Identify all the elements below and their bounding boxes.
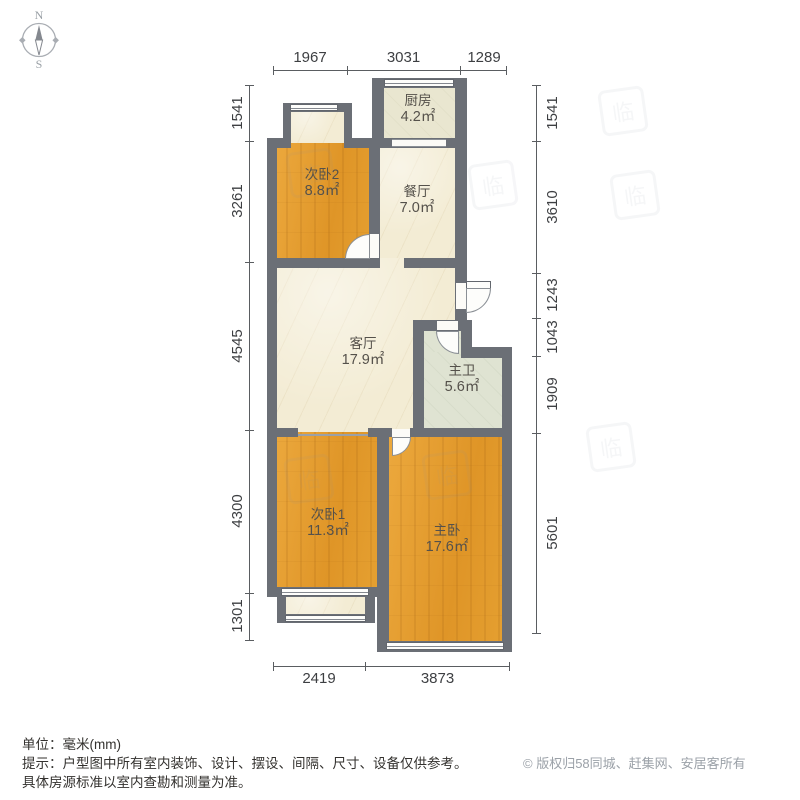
compass-north-label: N <box>35 8 44 22</box>
room-area: 17.6㎡ <box>415 539 479 555</box>
room-area: 7.0㎡ <box>387 200 447 216</box>
room-label-master-bath: 主卫 5.6㎡ <box>432 363 492 395</box>
wall <box>410 428 512 437</box>
dim-label: 5601 <box>545 498 561 568</box>
dim-line-left <box>249 85 250 640</box>
room-label-bedroom1: 次卧1 11.3㎡ <box>296 507 360 539</box>
dim-tick <box>245 262 254 263</box>
compass-needle-north <box>35 25 42 40</box>
dim-tick <box>460 66 461 75</box>
dim-label: 1967 <box>273 50 347 66</box>
dim-label: 1541 <box>230 78 246 148</box>
wall <box>267 258 380 268</box>
room-area: 11.3㎡ <box>296 523 360 539</box>
compass-needle-south <box>35 40 42 55</box>
dim-tick <box>532 85 541 86</box>
room-name: 餐厅 <box>387 184 447 200</box>
entry-door-opening <box>456 283 466 309</box>
entry-door-arc <box>466 288 491 313</box>
room-area: 8.8㎡ <box>292 183 352 199</box>
room-name: 主卧 <box>415 523 479 539</box>
wall <box>372 78 384 147</box>
wall <box>404 258 455 268</box>
dim-label: 3261 <box>230 166 246 236</box>
floorplan-canvas: N S 厨房 <box>0 0 800 800</box>
room-name: 次卧2 <box>292 167 352 183</box>
dim-label: 1289 <box>458 50 510 66</box>
hint-note-line1: 提示：户型图中所有室内装饰、设计、摆设、间隔、尺寸、设备仅供参考。 <box>22 752 468 772</box>
bay-window <box>290 104 338 111</box>
copyright-note: © 版权归58同城、赶集网、安居客所有 <box>523 753 793 772</box>
dim-tick <box>245 141 254 142</box>
dim-label: 3031 <box>347 50 460 66</box>
compass-icon: N S <box>8 6 70 70</box>
dim-line-bottom <box>273 666 510 667</box>
dim-tick <box>532 356 541 357</box>
watermark: 临 <box>283 453 335 505</box>
dim-tick <box>532 141 541 142</box>
room-label-dining: 餐厅 7.0㎡ <box>387 184 447 216</box>
bedroom2-door-opening <box>370 234 379 258</box>
dim-label: 2419 <box>273 671 365 687</box>
wall <box>267 428 298 437</box>
unit-note: 单位：毫米(mm) <box>22 733 121 753</box>
bay-window-floor <box>288 108 347 143</box>
dim-tick <box>273 66 274 75</box>
dim-label: 1541 <box>545 78 561 148</box>
wall <box>377 428 389 650</box>
balcony-window <box>285 615 366 622</box>
watermark: 临 <box>609 169 661 221</box>
room-area: 17.9㎡ <box>331 352 395 368</box>
watermark: 临 <box>597 85 649 137</box>
dim-tick <box>532 433 541 434</box>
hint-note-line2: 具体房源标准以室内查勘和测量为准。 <box>22 771 252 791</box>
dim-tick <box>509 662 510 671</box>
dim-tick <box>245 640 254 641</box>
wall <box>502 347 512 652</box>
compass-west-tick <box>19 37 26 44</box>
dim-tick <box>532 273 541 274</box>
wall <box>267 138 277 597</box>
dim-tick <box>245 85 254 86</box>
room-name: 客厅 <box>331 336 395 352</box>
dim-label: 3873 <box>365 671 510 687</box>
room-name: 厨房 <box>388 93 448 109</box>
room-label-master-bedroom: 主卧 17.6㎡ <box>415 523 479 555</box>
room-area: 4.2㎡ <box>388 109 448 125</box>
dim-label: 3610 <box>545 172 561 242</box>
dim-label: 1301 <box>230 581 246 651</box>
watermark: 临 <box>421 449 473 501</box>
kitchen-window <box>384 79 454 87</box>
dim-tick <box>273 662 274 671</box>
compass-east-tick <box>52 37 59 44</box>
dim-tick <box>506 66 507 75</box>
dim-label: 1909 <box>545 359 561 429</box>
wall <box>413 320 424 437</box>
room-label-living: 客厅 17.9㎡ <box>331 336 395 368</box>
bath-door-opening <box>437 321 458 330</box>
dim-tick <box>532 318 541 319</box>
master-bedroom-window <box>386 642 504 650</box>
wall <box>344 138 384 148</box>
room-name: 次卧1 <box>296 507 360 523</box>
compass-south-label: S <box>36 57 43 70</box>
watermark: 临 <box>467 159 519 211</box>
dim-tick <box>347 66 348 75</box>
dim-tick <box>245 593 254 594</box>
master-door-opening <box>392 429 410 437</box>
bedroom1-balcony-window <box>281 588 369 596</box>
dim-tick <box>365 662 366 671</box>
dim-line-top <box>273 70 507 71</box>
dim-line-right <box>536 85 537 633</box>
bedroom1-opening-line <box>298 434 368 436</box>
kitchen-door-opening <box>392 139 446 147</box>
room-label-bedroom2: 次卧2 8.8㎡ <box>292 167 352 199</box>
room-label-kitchen: 厨房 4.2㎡ <box>388 93 448 125</box>
dim-label: 4300 <box>230 476 246 546</box>
watermark: 临 <box>585 421 637 473</box>
dim-tick <box>532 633 541 634</box>
room-name: 主卫 <box>432 363 492 379</box>
dim-tick <box>245 430 254 431</box>
room-area: 5.6㎡ <box>432 379 492 395</box>
dim-label: 4545 <box>230 311 246 381</box>
